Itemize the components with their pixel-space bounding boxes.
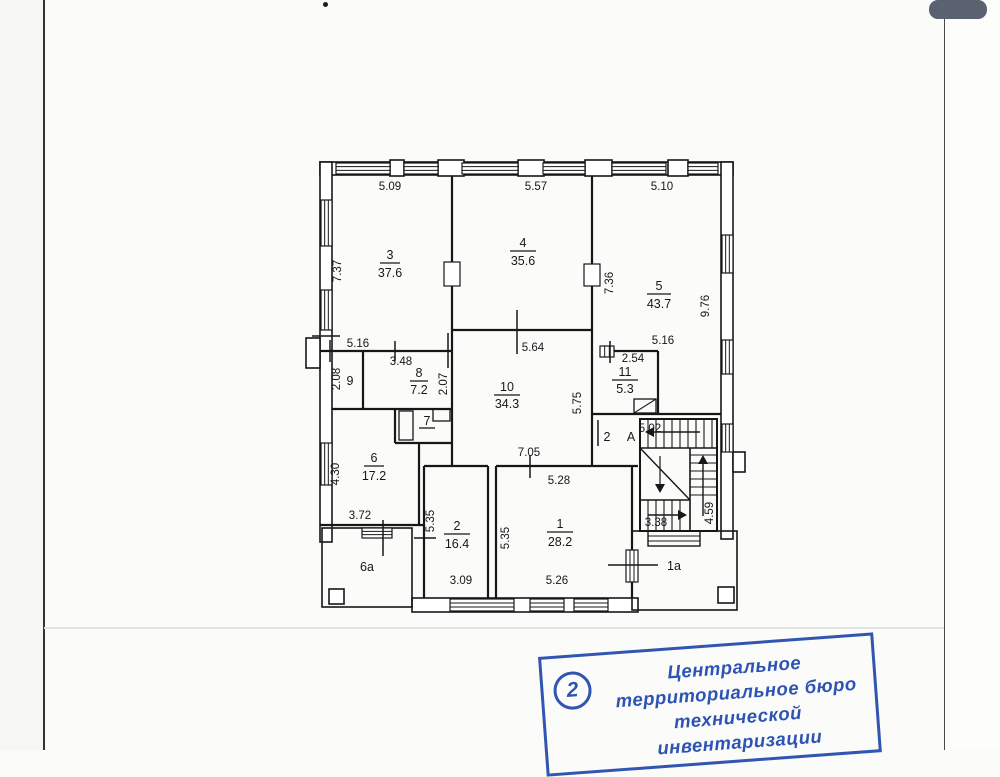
dim-label: 7.05 — [518, 447, 540, 459]
stamp-number-badge: 2 — [552, 670, 593, 711]
room-number: 11 — [619, 365, 632, 379]
room-number: 2 — [604, 430, 611, 444]
room-area: 35.6 — [511, 254, 535, 268]
room-area: 16.4 — [445, 537, 469, 551]
room-number: А — [627, 430, 636, 444]
window-hatch — [450, 599, 514, 611]
dim-label: 5.75 — [572, 392, 584, 414]
dim-label: 5.10 — [651, 181, 673, 193]
room-number: 6а — [360, 560, 374, 574]
dim-label: 3.48 — [390, 356, 412, 368]
dim-label: 5.28 — [548, 475, 570, 487]
room-area: 34.3 — [495, 397, 519, 411]
dim-label: 9.76 — [700, 295, 712, 317]
room-number: 4 — [520, 236, 527, 250]
window-hatch — [321, 200, 332, 246]
dim-label: 3.09 — [450, 575, 472, 587]
window-hatch — [321, 290, 332, 330]
window-hatch — [626, 550, 638, 582]
dim-label: 7.37 — [332, 260, 344, 282]
dim-label: 3.38 — [645, 517, 667, 529]
scanned-floor-plan-page: { "colors": { "ink": "#171717", "stamp_b… — [0, 0, 1000, 750]
window-hatch — [688, 163, 718, 174]
dim-label: 2.54 — [622, 353, 645, 365]
room-number: 1а — [667, 559, 681, 573]
dim-label: 5.64 — [522, 342, 545, 354]
window-hatch — [722, 235, 733, 273]
dim-label: 3.72 — [349, 510, 371, 522]
dim-label: 2.07 — [438, 373, 450, 395]
room-area: 43.7 — [647, 297, 671, 311]
dim-label: 7.36 — [604, 272, 616, 294]
window-hatch — [336, 163, 390, 174]
room-area: 7.2 — [410, 383, 427, 397]
room-area: 17.2 — [362, 469, 386, 483]
bti-stamp: 2 Центральное территориальное бюро техни… — [538, 632, 882, 776]
room-area: 28.2 — [548, 535, 572, 549]
window-hatch — [612, 163, 666, 174]
window-hatch — [543, 163, 585, 174]
room-number: 3 — [387, 248, 394, 262]
dim-label: 5.09 — [379, 181, 401, 193]
room-number: 8 — [416, 366, 423, 380]
room-number: 1 — [557, 517, 564, 531]
room-area: 37.6 — [378, 266, 402, 280]
plan-walls — [306, 160, 745, 612]
room-number: 6 — [371, 451, 378, 465]
dim-label: 5.26 — [546, 575, 568, 587]
room-area: 5.3 — [616, 382, 633, 396]
stamp-text: Центральное территориальное бюро техниче… — [596, 646, 879, 766]
dim-label: 5.16 — [652, 335, 674, 347]
room-number: 5 — [656, 279, 663, 293]
window-hatch — [362, 528, 392, 538]
dim-label: 4.59 — [704, 502, 716, 524]
dim-label: 5.16 — [347, 338, 369, 350]
dim-label: 5.35 — [500, 527, 512, 549]
dim-label: 4.30 — [330, 463, 342, 485]
room-number: 10 — [500, 380, 514, 394]
window-hatch — [722, 424, 733, 452]
dim-label: 2.08 — [331, 368, 343, 390]
dim-label: 5.57 — [525, 181, 547, 193]
window-hatch — [574, 599, 608, 611]
dim-label: 5.35 — [425, 510, 437, 532]
window-hatch — [462, 163, 518, 174]
window-hatch — [600, 346, 614, 357]
window-hatch — [530, 599, 564, 611]
room-labels: 3 37.6 4 35.6 5 43.7 9 8 7.2 10 34.3 11 … — [347, 236, 681, 574]
room-number: 7 — [424, 414, 431, 428]
window-hatch — [722, 340, 733, 374]
window-hatch — [404, 163, 438, 174]
room-number: 2 — [454, 519, 461, 533]
dim-label: 5.02 — [639, 423, 661, 435]
room-number: 9 — [347, 374, 354, 388]
